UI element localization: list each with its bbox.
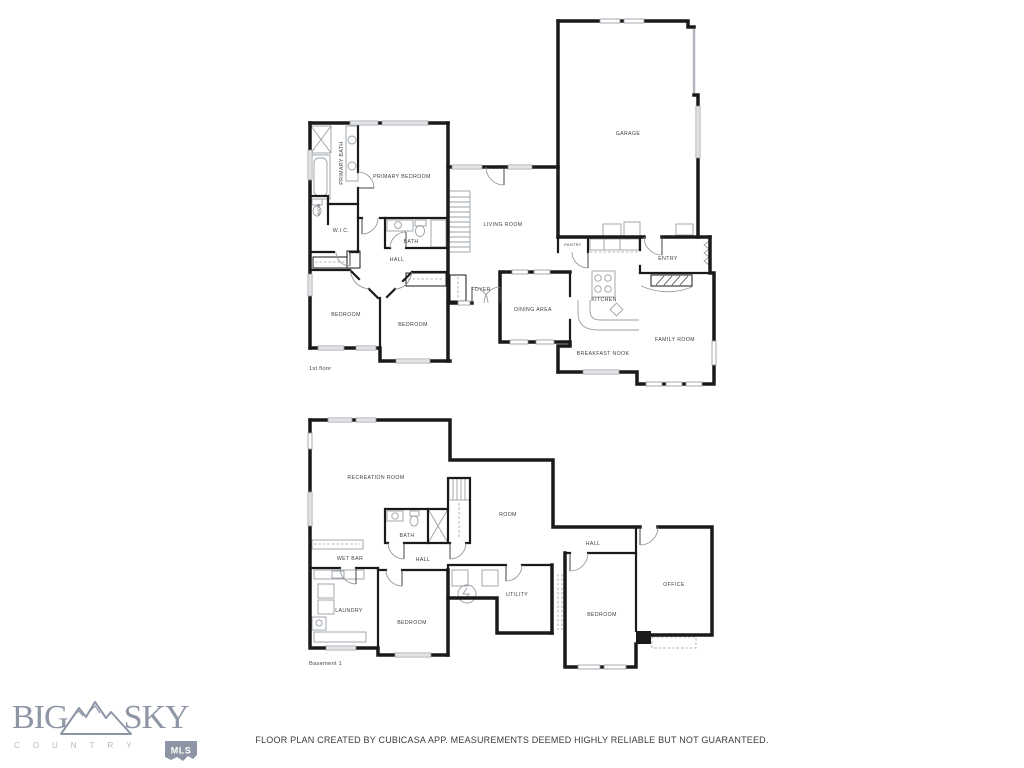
room-label-primary-bath: PRIMARY BATH xyxy=(339,141,345,184)
room-label-pantry: PANTRY xyxy=(564,243,582,247)
room-label-bedroom-right: BEDROOM xyxy=(398,322,428,328)
room-label-basement-bedroom-left: BEDROOM xyxy=(397,620,427,626)
first-floor-windows xyxy=(308,19,716,386)
logo-wordmark: BIG SKY xyxy=(12,698,189,738)
room-label-utility: UTILITY xyxy=(506,592,528,598)
room-label-living-room: LIVING ROOM xyxy=(484,222,523,228)
room-label-wic: W.I.C. xyxy=(333,228,350,234)
room-label-room: ROOM xyxy=(499,512,517,518)
basement-plan: RECREATION ROOM ROOM BATH WET BAR HALL H… xyxy=(308,418,712,669)
floorplan-drawing: PRIMARY BATH PRIMARY BEDROOM BATH W.I.C.… xyxy=(0,0,1024,768)
first-floor-plan: PRIMARY BATH PRIMARY BEDROOM BATH W.I.C.… xyxy=(308,19,716,386)
mountain-icon xyxy=(59,700,133,736)
room-label-toilet-room: BATH xyxy=(317,203,321,214)
room-label-hall-left: HALL xyxy=(416,557,431,563)
room-label-dining-area: DINING AREA xyxy=(514,307,552,313)
room-label-hall: HALL xyxy=(390,257,405,263)
room-label-office: OFFICE xyxy=(663,582,685,588)
basement-doors xyxy=(340,527,658,586)
room-label-bath: BATH xyxy=(403,239,418,245)
disclaimer-text: FLOOR PLAN CREATED BY CUBICASA APP. MEAS… xyxy=(0,735,1024,745)
room-label-foyer: FOYER xyxy=(471,287,491,293)
basement-walls xyxy=(310,420,712,667)
mls-badge-text: MLS xyxy=(171,746,192,756)
room-label-breakfast-nook: BREAKFAST NOOK xyxy=(577,351,630,357)
room-label-primary-bedroom: PRIMARY BEDROOM xyxy=(373,174,431,180)
room-label-family-room: FAMILY ROOM xyxy=(655,337,695,343)
room-label-kitchen: KITCHEN xyxy=(591,297,617,303)
room-label-wet-bar: WET BAR xyxy=(337,556,363,562)
first-floor-walls xyxy=(310,21,714,384)
room-label-basement-bedroom-right: BEDROOM xyxy=(587,612,617,618)
room-label-entry: ENTRY xyxy=(658,256,678,262)
basement-fixtures xyxy=(312,478,696,648)
room-label-recreation-room: RECREATION ROOM xyxy=(347,475,404,481)
basement-caption: Basement 1 xyxy=(309,661,342,667)
floorplan-page: PRIMARY BATH PRIMARY BEDROOM BATH W.I.C.… xyxy=(0,0,1024,768)
room-label-bedroom-left: BEDROOM xyxy=(331,312,361,318)
basement-labels: RECREATION ROOM ROOM BATH WET BAR HALL H… xyxy=(309,475,685,667)
room-label-hall-right: HALL xyxy=(586,541,601,547)
logo-word-sky: SKY xyxy=(124,698,189,738)
room-label-garage: GARAGE xyxy=(616,131,641,137)
first-floor-fixtures xyxy=(311,29,709,330)
room-label-basement-bath: BATH xyxy=(399,533,414,539)
floor1-caption: 1st floor xyxy=(309,366,331,372)
bigsky-mls-logo: BIG SKY COUNTRY MLS xyxy=(12,698,212,764)
room-label-laundry: LAUNDRY xyxy=(335,608,363,614)
